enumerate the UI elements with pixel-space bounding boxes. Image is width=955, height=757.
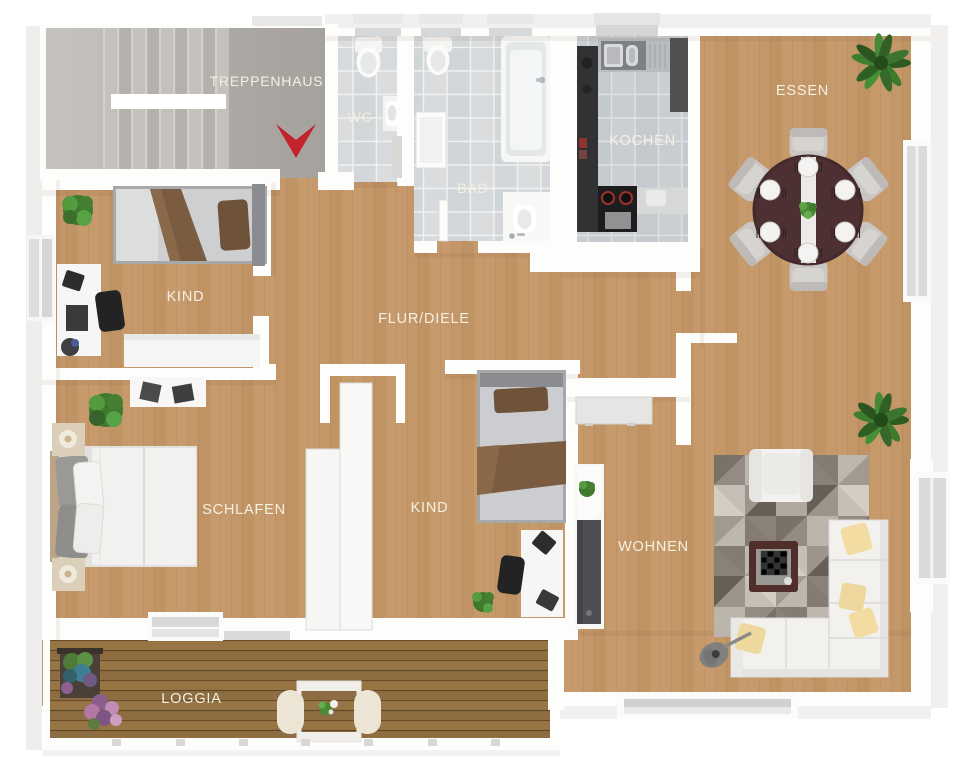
svg-text:FLUR/DIELE: FLUR/DIELE (378, 311, 470, 327)
svg-text:KOCHEN: KOCHEN (609, 133, 676, 149)
svg-text:WC: WC (348, 109, 373, 125)
svg-text:WOHNEN: WOHNEN (618, 539, 689, 555)
svg-text:LOGGIA: LOGGIA (161, 691, 221, 707)
svg-text:ESSEN: ESSEN (776, 83, 829, 99)
svg-text:BAD: BAD (457, 180, 488, 196)
svg-text:KIND: KIND (167, 289, 205, 305)
svg-text:SCHLAFEN: SCHLAFEN (202, 502, 286, 518)
svg-text:TREPPENHAUS: TREPPENHAUS (210, 73, 324, 89)
svg-text:KIND: KIND (411, 500, 449, 516)
